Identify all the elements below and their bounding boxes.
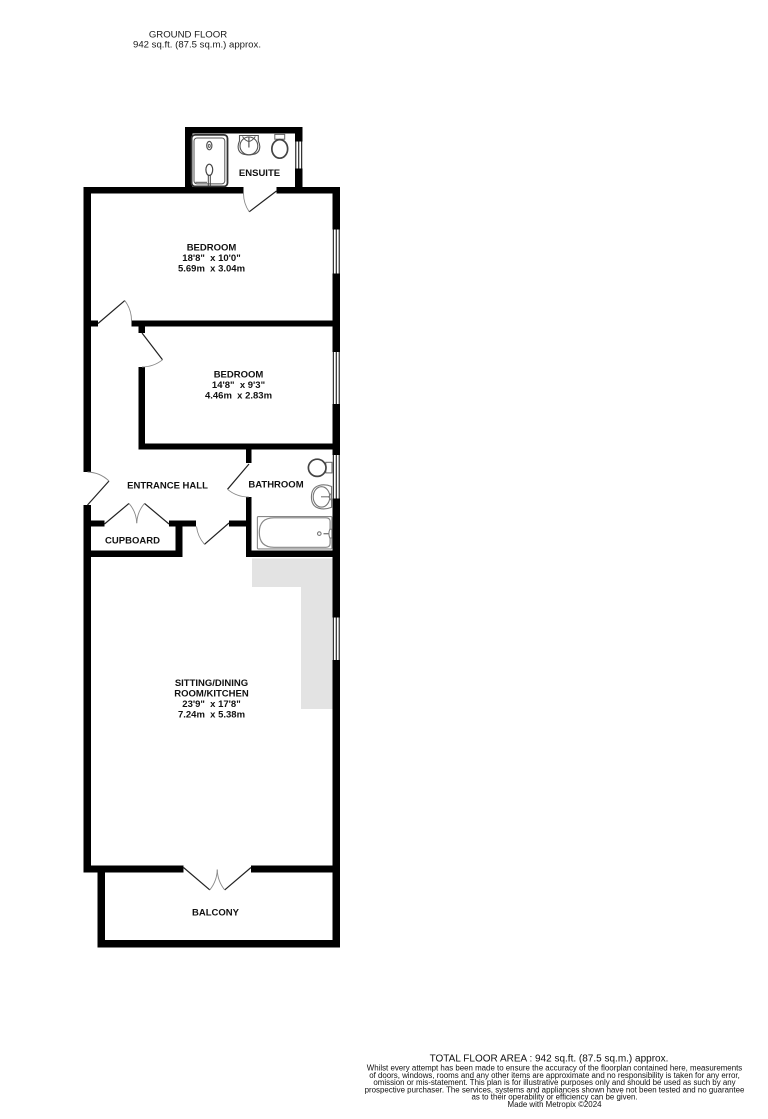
svg-text:BATHROOM: BATHROOM — [248, 479, 303, 490]
svg-text:5.69m x 3.04m: 5.69m x 3.04m — [178, 264, 245, 275]
svg-text:18'8" x 10'0": 18'8" x 10'0" — [182, 253, 240, 264]
svg-text:CUPBOARD: CUPBOARD — [105, 535, 160, 546]
svg-text:14'8" x 9'3": 14'8" x 9'3" — [212, 380, 265, 391]
svg-text:ROOM/KITCHEN: ROOM/KITCHEN — [174, 689, 249, 700]
svg-text:ENTRANCE HALL: ENTRANCE HALL — [127, 480, 208, 491]
svg-text:SITTING/DINING: SITTING/DINING — [175, 678, 248, 689]
svg-text:BEDROOM: BEDROOM — [214, 370, 264, 381]
svg-text:Made with Metropix ©2024: Made with Metropix ©2024 — [508, 1100, 603, 1109]
svg-text:BEDROOM: BEDROOM — [187, 243, 237, 254]
svg-text:ENSUITE: ENSUITE — [239, 168, 280, 179]
svg-text:7.24m x 5.38m: 7.24m x 5.38m — [178, 710, 245, 721]
svg-text:942 sq.ft. (87.5 sq.m.) approx: 942 sq.ft. (87.5 sq.m.) approx. — [133, 40, 261, 51]
svg-text:BALCONY: BALCONY — [192, 907, 240, 918]
svg-text:23'9" x 17'8": 23'9" x 17'8" — [182, 699, 240, 710]
svg-text:4.46m x 2.83m: 4.46m x 2.83m — [205, 391, 272, 402]
